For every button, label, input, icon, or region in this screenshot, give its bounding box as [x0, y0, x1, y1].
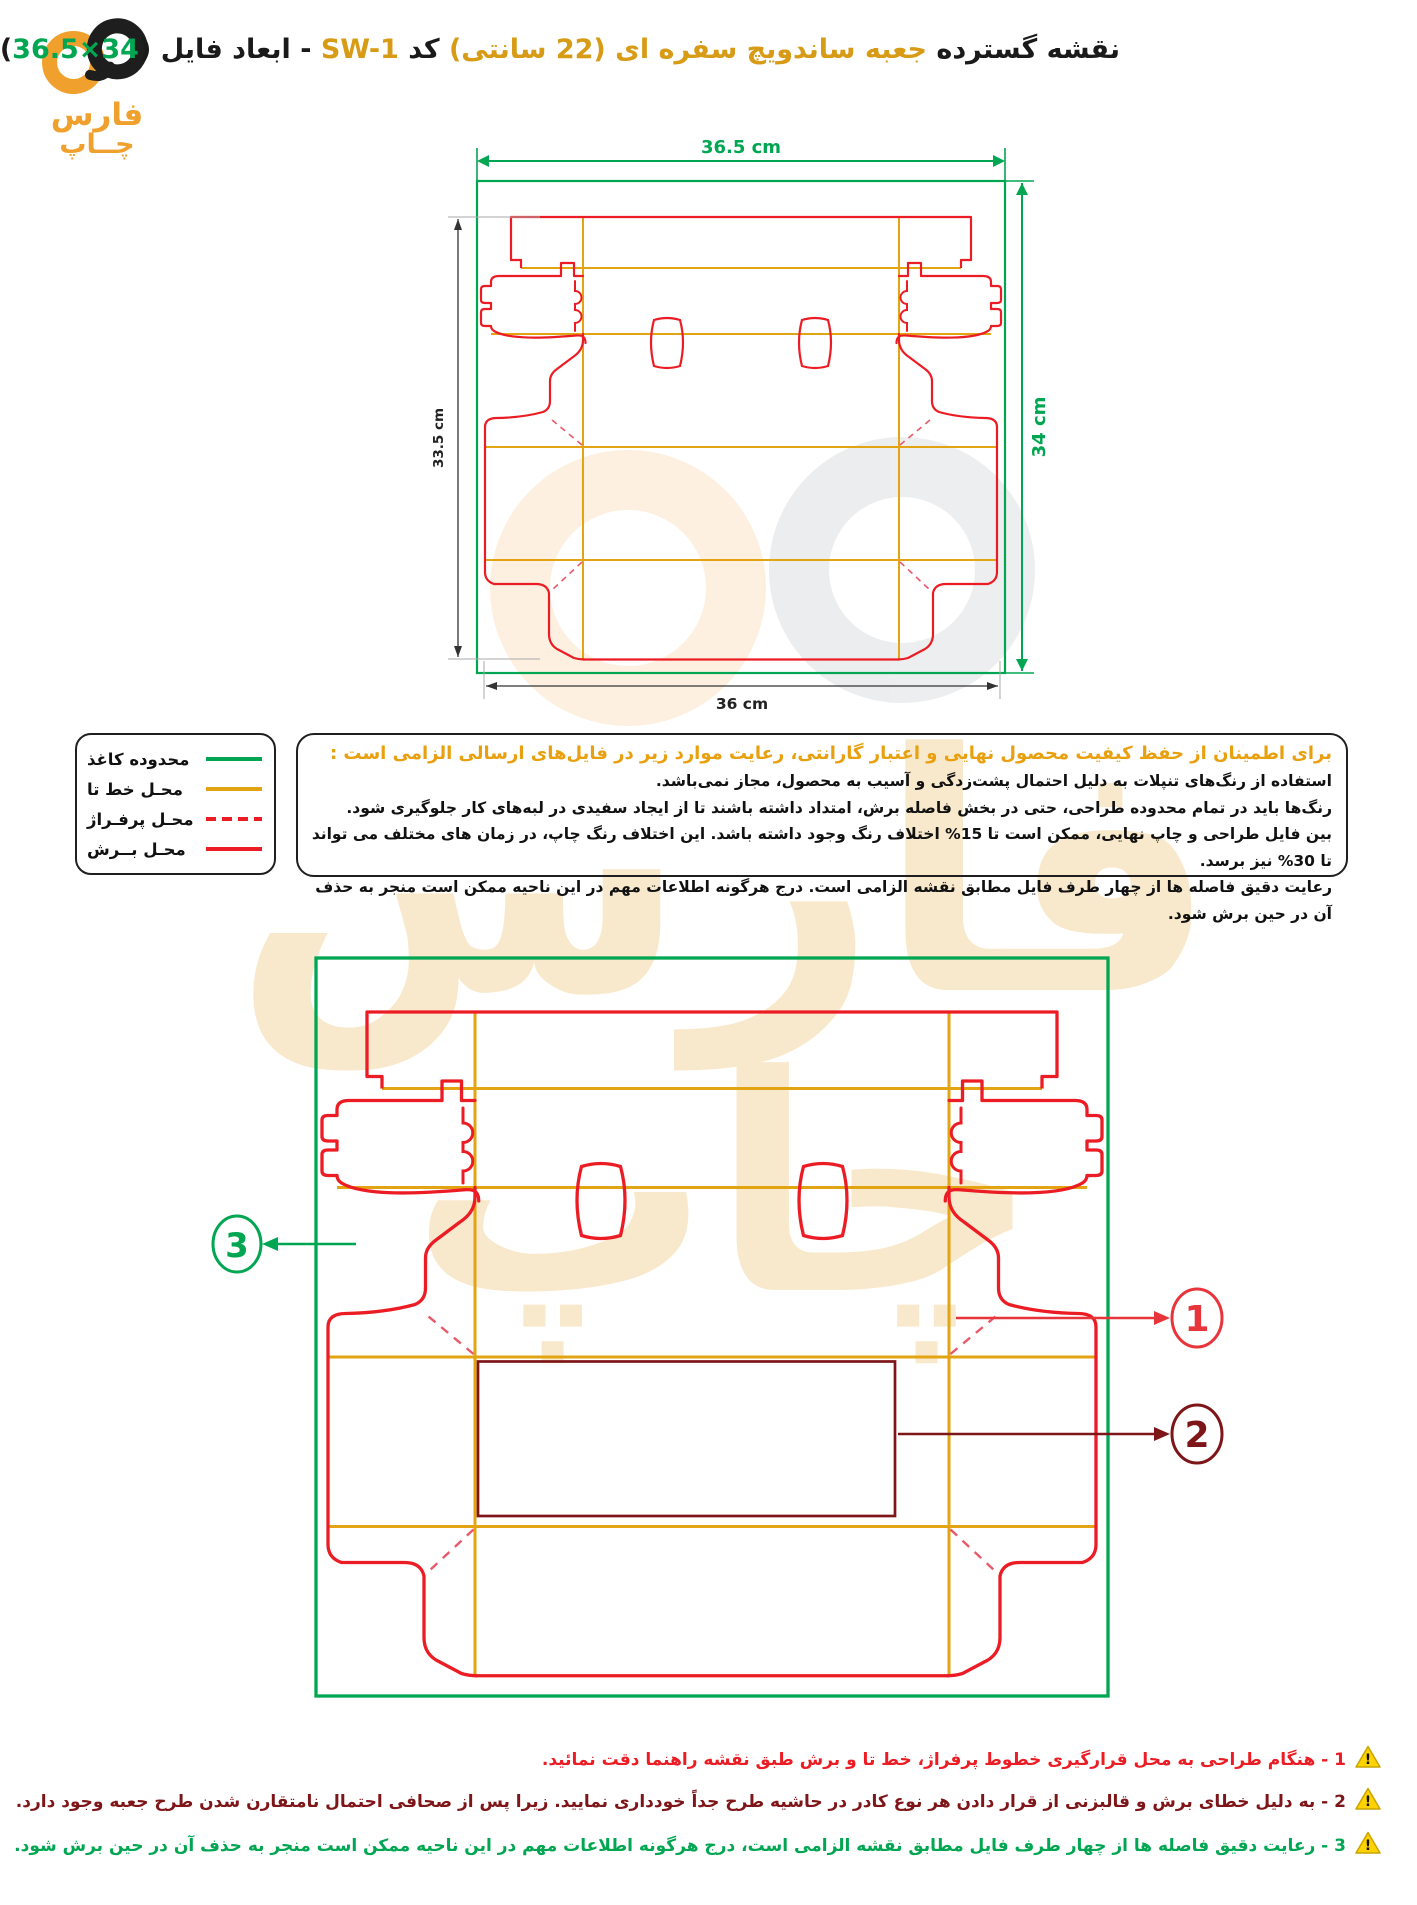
title-file-size: 36.5×34 — [12, 34, 139, 65]
callout-3-number: 3 — [225, 1226, 249, 1266]
title-black-1: نقشه گسترده — [927, 34, 1120, 65]
instructions-box: برای اطمینان از حفظ کیفیت محصول نهایی و … — [296, 733, 1348, 877]
note-1-text: 1 - هنگام طراحی به محل قرارگیری خطوط پرف… — [542, 1750, 1346, 1770]
legend-label-paper: محدوده کاغذ — [87, 750, 198, 769]
title-black-4: ) — [0, 34, 12, 65]
svg-text:!: ! — [1365, 1752, 1371, 1768]
legend-label-fold: محـل خط تا — [87, 780, 198, 799]
title-code: SW-1 — [321, 34, 399, 65]
legend-row-fold: محـل خط تا — [87, 774, 262, 804]
dieline-graphics: فارس چاپ 36.5 cm 34 cm — [0, 0, 1417, 1905]
instruction-line-2: رنگ‌ها باید در تمام محدوده طراحی، حتی در… — [308, 795, 1332, 822]
instruction-line-1: استفاده از رنگ‌های تنپلات به دلیل احتمال… — [308, 768, 1332, 795]
legend-label-perforation: محـل پرفـراژ — [87, 810, 198, 829]
callout-frame: 2 — [898, 1405, 1222, 1463]
title-black-2: کد — [399, 34, 449, 65]
yellow-line-swatch — [206, 787, 262, 791]
legend-row-cut: محـل بــرش — [87, 834, 262, 864]
dim-top: 36.5 cm — [477, 137, 1005, 180]
page-title: نقشه گسترده جعبه ساندویچ سفره ای (22 سان… — [160, 34, 1120, 65]
instruction-line-3: بین فایل طراحی و چاپ نهایی، ممکن است تا … — [308, 821, 1332, 874]
dim-bottom-label: 36 cm — [716, 695, 768, 713]
design-safe-frame — [478, 1362, 895, 1517]
page: فارس چاپ 36.5 cm 34 cm — [0, 0, 1417, 1905]
callout-paper-boundary: 3 — [213, 1216, 356, 1272]
logo-text-2: چــاپ — [28, 130, 166, 160]
dim-top-label: 36.5 cm — [701, 137, 781, 158]
instruction-line-4: رعایت دقیق فاصله ها از چهار طرف فایل مطا… — [308, 874, 1332, 927]
red-dashed-swatch — [206, 817, 262, 821]
svg-text:!: ! — [1365, 1838, 1371, 1854]
brand-logo: فارس چــاپ — [28, 10, 166, 160]
green-line-swatch — [206, 757, 262, 761]
note-1: ! 1 - هنگام طراحی به محل قرارگیری خطوط پ… — [36, 1745, 1381, 1774]
line-legend: محدوده کاغذ محـل خط تا محـل پرفـراژ محـل… — [75, 733, 276, 875]
note-2-text: 2 - به دلیل خطای برش و قالبزنی از قرار د… — [16, 1792, 1346, 1812]
infinity-watermark — [520, 467, 1005, 696]
legend-row-paper: محدوده کاغذ — [87, 744, 262, 774]
dim-left-label: 33.5 cm — [431, 408, 447, 468]
dim-right-label: 34 cm — [1029, 397, 1050, 458]
red-line-swatch — [206, 847, 262, 851]
warning-icon: ! — [1355, 1745, 1381, 1774]
logo-text-1: فارس — [28, 100, 166, 130]
legend-row-perforation: محـل پرفـراژ — [87, 804, 262, 834]
svg-text:!: ! — [1365, 1794, 1371, 1810]
note-2: ! 2 - به دلیل خطای برش و قالبزنی از قرار… — [36, 1787, 1381, 1816]
warning-icon: ! — [1355, 1831, 1381, 1860]
title-black-3: - ابعاد فایل ( — [139, 34, 321, 65]
callout-1-number: 1 — [1184, 1299, 1209, 1340]
instructions-heading: برای اطمینان از حفظ کیفیت محصول نهایی و … — [308, 740, 1332, 768]
warning-icon: ! — [1355, 1787, 1381, 1816]
legend-label-cut: محـل بــرش — [87, 840, 198, 859]
callout-2-number: 2 — [1184, 1415, 1209, 1456]
note-3: ! 3 - رعایت دقیق فاصله ها از چهار طرف فا… — [36, 1831, 1381, 1860]
note-3-text: 3 - رعایت دقیق فاصله ها از چهار طرف فایل… — [14, 1836, 1346, 1856]
title-product: جعبه ساندویچ سفره ای (22 سانتی) — [449, 34, 927, 65]
